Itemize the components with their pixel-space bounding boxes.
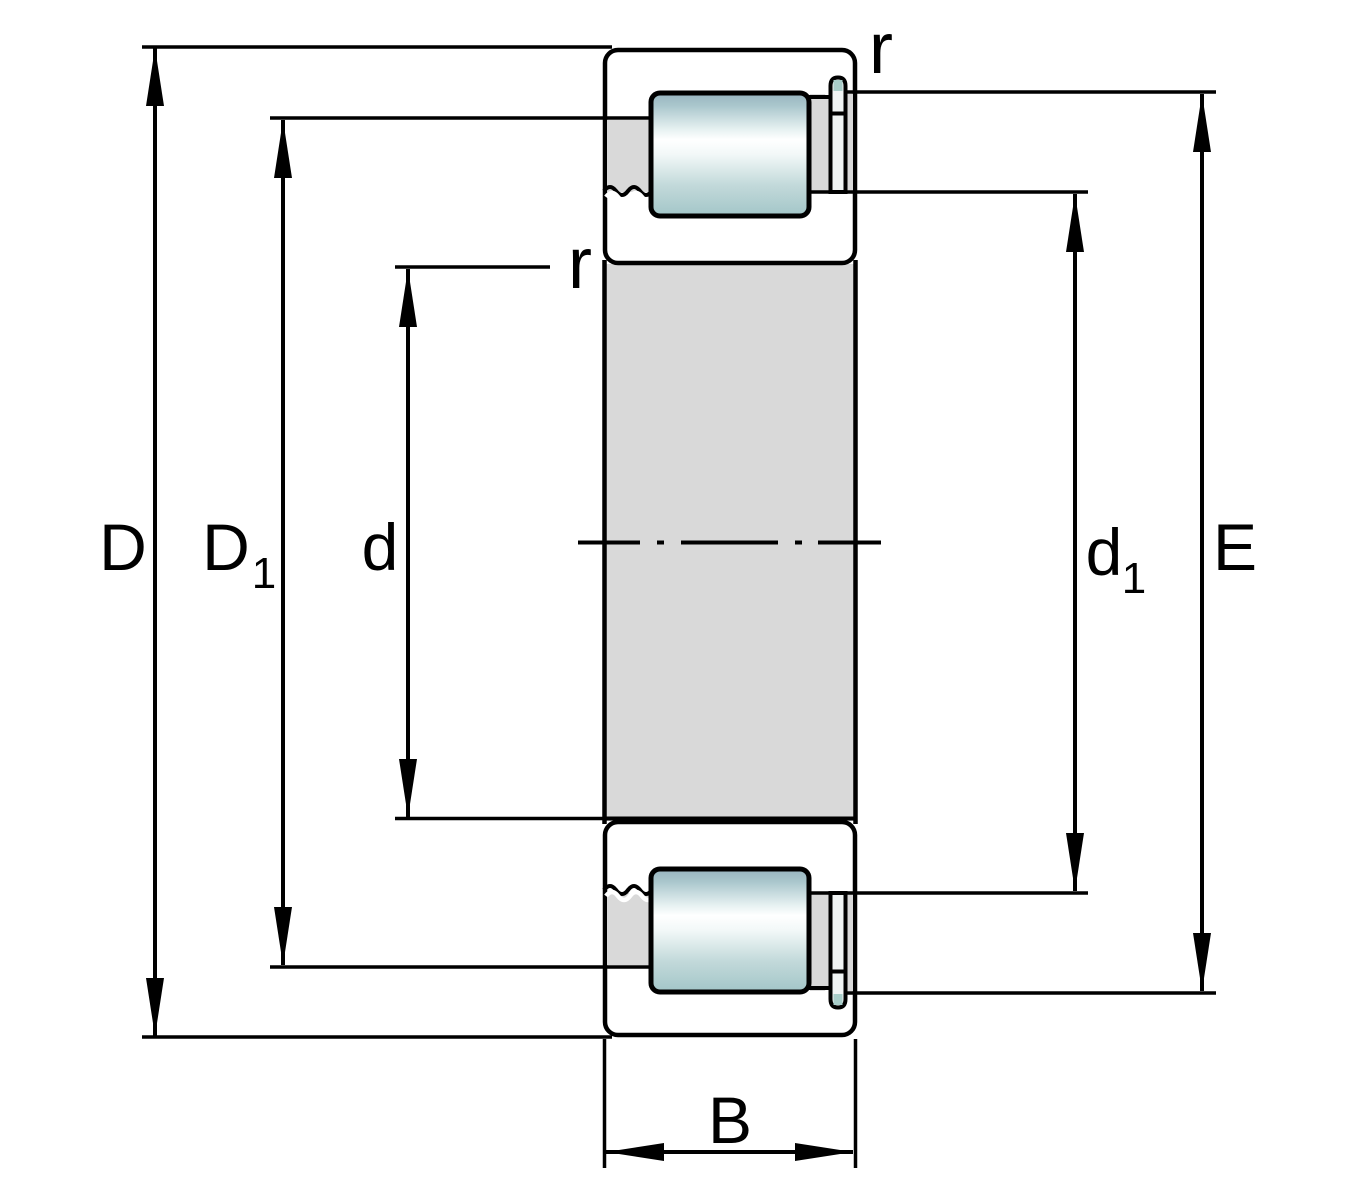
arrowhead-down [274, 907, 292, 965]
snap-ring-cap-top [834, 80, 843, 91]
arrowhead-up [399, 269, 417, 327]
label-D: D [99, 510, 147, 584]
arrowhead-up [1066, 194, 1084, 252]
rib-step-highlight-bottom [611, 971, 644, 989]
arrowhead-down [1066, 833, 1084, 891]
arrowhead-left [606, 1143, 664, 1161]
arrowhead-right [795, 1143, 853, 1161]
label-r-top: r [869, 9, 893, 89]
bearing-cross-section-drawing: D D 1 d d 1 E B r r [0, 0, 1350, 1200]
roller-bottom [651, 869, 809, 992]
arrowhead-up [274, 120, 292, 178]
drawing-canvas: D D 1 d d 1 E B r r [0, 0, 1350, 1200]
label-D1-base: D [202, 510, 250, 584]
roller-top [651, 93, 809, 216]
label-d: d [362, 510, 399, 584]
label-d1-base: d [1086, 515, 1123, 589]
arrowhead-down [1193, 933, 1211, 991]
label-r-left: r [568, 224, 592, 304]
inner-ring-rib-bottom-left [607, 893, 651, 965]
dimension-E [845, 92, 1216, 993]
snap-ring-cap-bottom [834, 994, 843, 1005]
bearing-bottom-section [604, 822, 855, 1035]
arrowhead-down [399, 759, 417, 817]
label-d1-subscript: 1 [1122, 554, 1146, 603]
snap-ring-top [831, 78, 846, 193]
label-B: B [708, 1083, 752, 1157]
snap-ring-bottom [831, 893, 846, 1008]
arrowhead-up [1193, 94, 1211, 152]
arrowhead-up [146, 48, 164, 106]
bearing-top-section [604, 50, 855, 263]
label-E: E [1213, 510, 1257, 584]
inner-ring-rib-top-left [607, 120, 651, 192]
arrowhead-down [146, 978, 164, 1036]
label-D1-subscript: 1 [252, 549, 276, 598]
